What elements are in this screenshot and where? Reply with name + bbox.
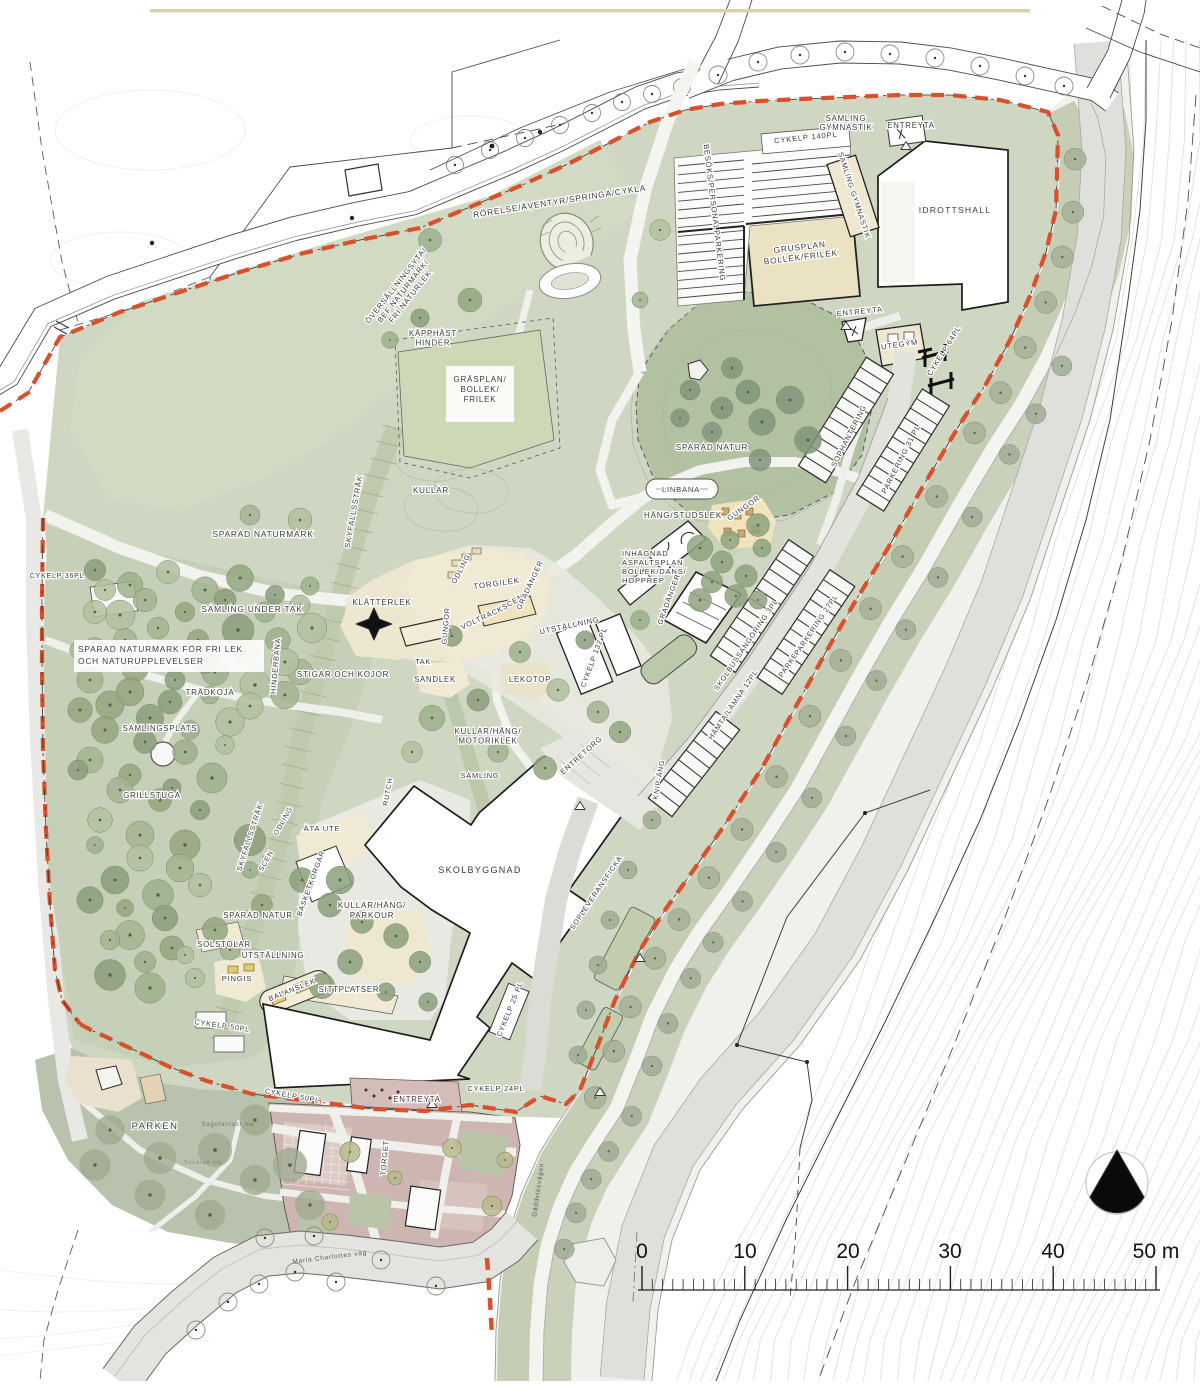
svg-text:PARKOUR: PARKOUR xyxy=(350,911,395,920)
svg-text:CYKELP 36PL: CYKELP 36PL xyxy=(30,573,85,580)
svg-text:SAMLING: SAMLING xyxy=(461,771,500,780)
svg-text:UTSTÄLLNING: UTSTÄLLNING xyxy=(242,951,305,960)
svg-text:SAMLING UNDER TAK: SAMLING UNDER TAK xyxy=(201,604,302,614)
svg-text:PARKEN: PARKEN xyxy=(132,1121,179,1132)
svg-text:KULLAR/HÄNG/: KULLAR/HÄNG/ xyxy=(455,727,522,736)
svg-text:INHÄGNAD: INHÄGNAD xyxy=(622,549,668,558)
svg-text:SAMLING: SAMLING xyxy=(826,114,867,123)
svg-text:Sexårad lek: Sexårad lek xyxy=(184,1159,222,1166)
svg-text:CYKELP 24PL: CYKELP 24PL xyxy=(467,1084,524,1093)
svg-text:GRILLSTUGA: GRILLSTUGA xyxy=(123,791,180,800)
svg-text:GRÄSPLAN/: GRÄSPLAN/ xyxy=(454,375,507,384)
svg-text:HÄNG/STUDSLEK: HÄNG/STUDSLEK xyxy=(644,511,722,520)
svg-text:SPARAD NATURMARK: SPARAD NATURMARK xyxy=(212,529,313,539)
svg-text:LINBANA: LINBANA xyxy=(662,485,700,494)
svg-text:OCH NATURUPPLEVELSER: OCH NATURUPPLEVELSER xyxy=(78,656,204,666)
svg-text:SITTPLATSER: SITTPLATSER xyxy=(319,985,380,994)
svg-text:BOLLEK/: BOLLEK/ xyxy=(461,385,500,394)
svg-text:Sagofantasi lek: Sagofantasi lek xyxy=(201,1122,254,1128)
svg-text:SANDLEK: SANDLEK xyxy=(414,675,456,684)
svg-text:HOPPREP: HOPPREP xyxy=(622,576,665,585)
svg-text:LEKOTOP: LEKOTOP xyxy=(509,675,551,684)
svg-text:50 m: 50 m xyxy=(1133,1240,1180,1263)
svg-text:KULLAR/HÄNG/: KULLAR/HÄNG/ xyxy=(338,901,406,910)
svg-text:KÄPPHÄST: KÄPPHÄST xyxy=(409,329,457,338)
svg-text:0: 0 xyxy=(636,1240,648,1263)
svg-text:SAMLINGSPLATS: SAMLINGSPLATS xyxy=(123,724,198,733)
svg-text:10: 10 xyxy=(733,1240,756,1263)
svg-text:IDROTTSHALL: IDROTTSHALL xyxy=(919,205,991,215)
svg-text:ÄTA UTE: ÄTA UTE xyxy=(304,824,341,833)
svg-text:MOTORIKLEK: MOTORIKLEK xyxy=(459,737,518,746)
svg-text:TAK: TAK xyxy=(415,657,431,666)
svg-text:20: 20 xyxy=(836,1240,859,1263)
svg-text:SPARAD NATURMARK FÖR FRI LEK: SPARAD NATURMARK FÖR FRI LEK xyxy=(78,644,243,654)
svg-text:TRÄDKOJA: TRÄDKOJA xyxy=(185,688,234,697)
svg-text:FRILEK: FRILEK xyxy=(464,395,497,404)
svg-text:ASFALTSPLAN: ASFALTSPLAN xyxy=(622,558,683,567)
svg-text:KLÄTTERLEK: KLÄTTERLEK xyxy=(352,598,411,607)
svg-text:SOLSTOLAR: SOLSTOLAR xyxy=(197,940,251,949)
svg-text:40: 40 xyxy=(1041,1240,1064,1263)
svg-text:ENTREYTA: ENTREYTA xyxy=(887,121,934,130)
svg-text:SPARAD NATUR: SPARAD NATUR xyxy=(223,911,293,920)
svg-text:SPARAD NATUR: SPARAD NATUR xyxy=(676,443,749,452)
svg-text:HINDER: HINDER xyxy=(416,339,451,348)
svg-text:STIGAR OCH KOJOR: STIGAR OCH KOJOR xyxy=(297,670,389,679)
svg-text:SKOLBYGGNAD: SKOLBYGGNAD xyxy=(438,865,521,875)
svg-text:30: 30 xyxy=(938,1240,961,1263)
svg-text:PINGIS: PINGIS xyxy=(222,974,253,983)
svg-text:ENTREYTA: ENTREYTA xyxy=(393,1095,440,1104)
svg-text:KULLAR: KULLAR xyxy=(413,486,449,495)
